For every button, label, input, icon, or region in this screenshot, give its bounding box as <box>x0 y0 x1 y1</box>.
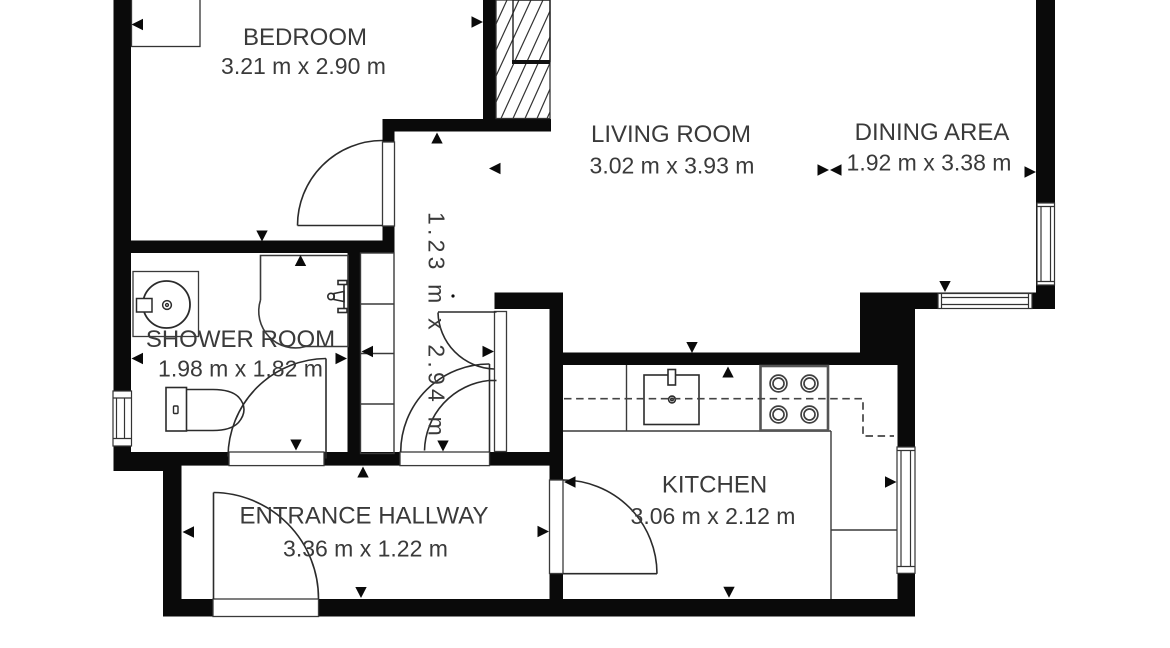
svg-text:3.06 m x 2.12 m: 3.06 m x 2.12 m <box>631 503 796 529</box>
svg-text:1.23 m x 2.94 m: 1.23 m x 2.94 m <box>424 212 450 440</box>
svg-text:3.02 m x 3.93 m: 3.02 m x 3.93 m <box>590 153 755 179</box>
svg-text:BEDROOM: BEDROOM <box>243 24 367 51</box>
svg-text:SHOWER ROOM: SHOWER ROOM <box>146 326 335 353</box>
svg-text:LIVING ROOM: LIVING ROOM <box>591 121 751 148</box>
svg-text:DINING AREA: DINING AREA <box>855 119 1010 146</box>
svg-text:3.36 m x 1.22 m: 3.36 m x 1.22 m <box>283 536 448 562</box>
svg-text:1.98 m x 1.82 m: 1.98 m x 1.82 m <box>158 356 323 382</box>
svg-text:3.21 m x 2.90 m: 3.21 m x 2.90 m <box>221 53 386 79</box>
svg-text:ENTRANCE HALLWAY: ENTRANCE HALLWAY <box>240 503 489 530</box>
svg-text:1.92 m x 3.38 m: 1.92 m x 3.38 m <box>847 150 1012 176</box>
svg-text:KITCHEN: KITCHEN <box>662 472 767 499</box>
